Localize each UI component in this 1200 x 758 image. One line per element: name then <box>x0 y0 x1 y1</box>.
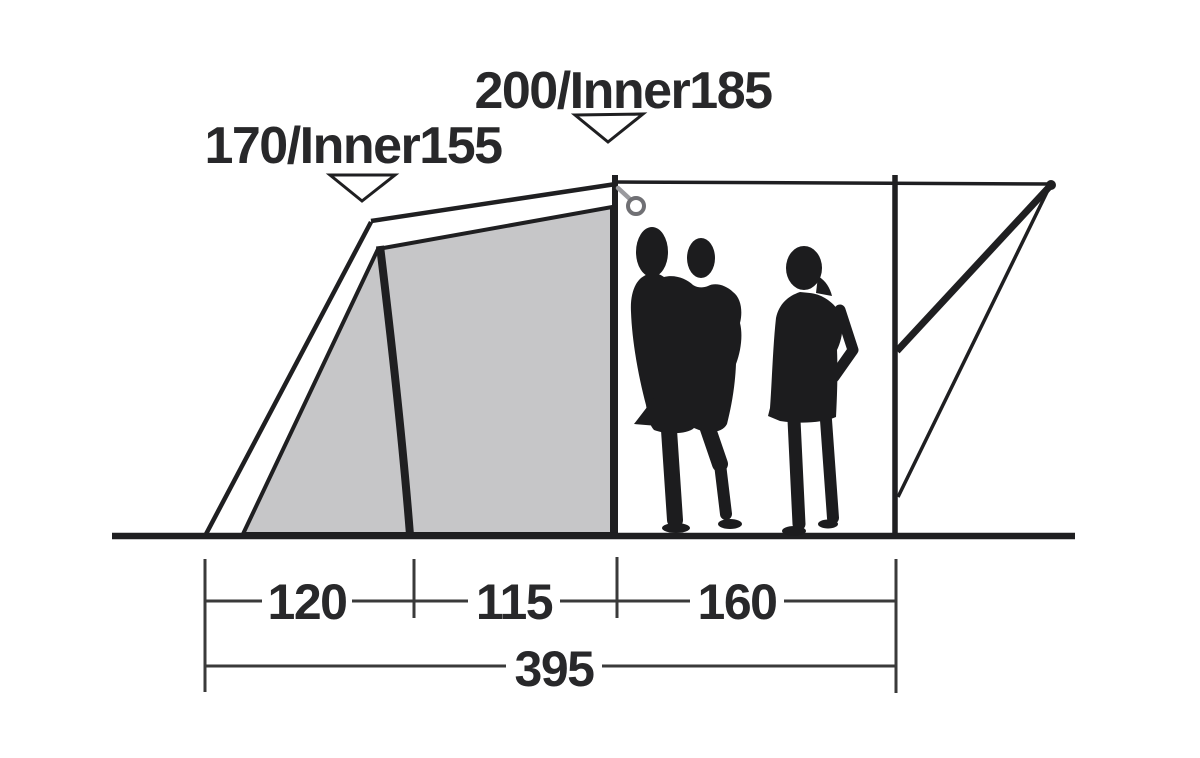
ridge-end-joint-dot <box>1046 180 1056 190</box>
diagram-canvas: 120 115 160 395 170/Inner155 200/Inner18… <box>0 0 1200 758</box>
ridge-line <box>615 182 1052 184</box>
woman-left-foot <box>782 526 806 536</box>
woman-head <box>786 246 822 290</box>
total-width-label: 395 <box>515 641 595 697</box>
guy-line-ring-icon <box>628 198 644 214</box>
segment-width-label-3: 160 <box>698 574 777 630</box>
segment-width-label-1: 120 <box>268 574 347 630</box>
woman-right-foot <box>818 520 838 529</box>
adult-left-leg <box>669 430 675 520</box>
adult-head <box>636 227 668 277</box>
adult-right-calf <box>720 464 726 514</box>
woman-left-leg <box>794 420 799 524</box>
woman-dress-torso <box>768 292 842 423</box>
woman-right-leg <box>826 420 833 518</box>
center-height-label: 200/Inner185 <box>474 62 772 120</box>
child-head <box>687 238 715 278</box>
tent-dimension-diagram: 120 115 160 395 170/Inner155 200/Inner18… <box>0 0 1200 758</box>
segment-width-label-2: 115 <box>476 574 553 630</box>
adult-right-foot <box>718 519 742 529</box>
adult-left-foot <box>662 523 690 533</box>
peak-height-label: 170/Inner155 <box>204 117 502 175</box>
